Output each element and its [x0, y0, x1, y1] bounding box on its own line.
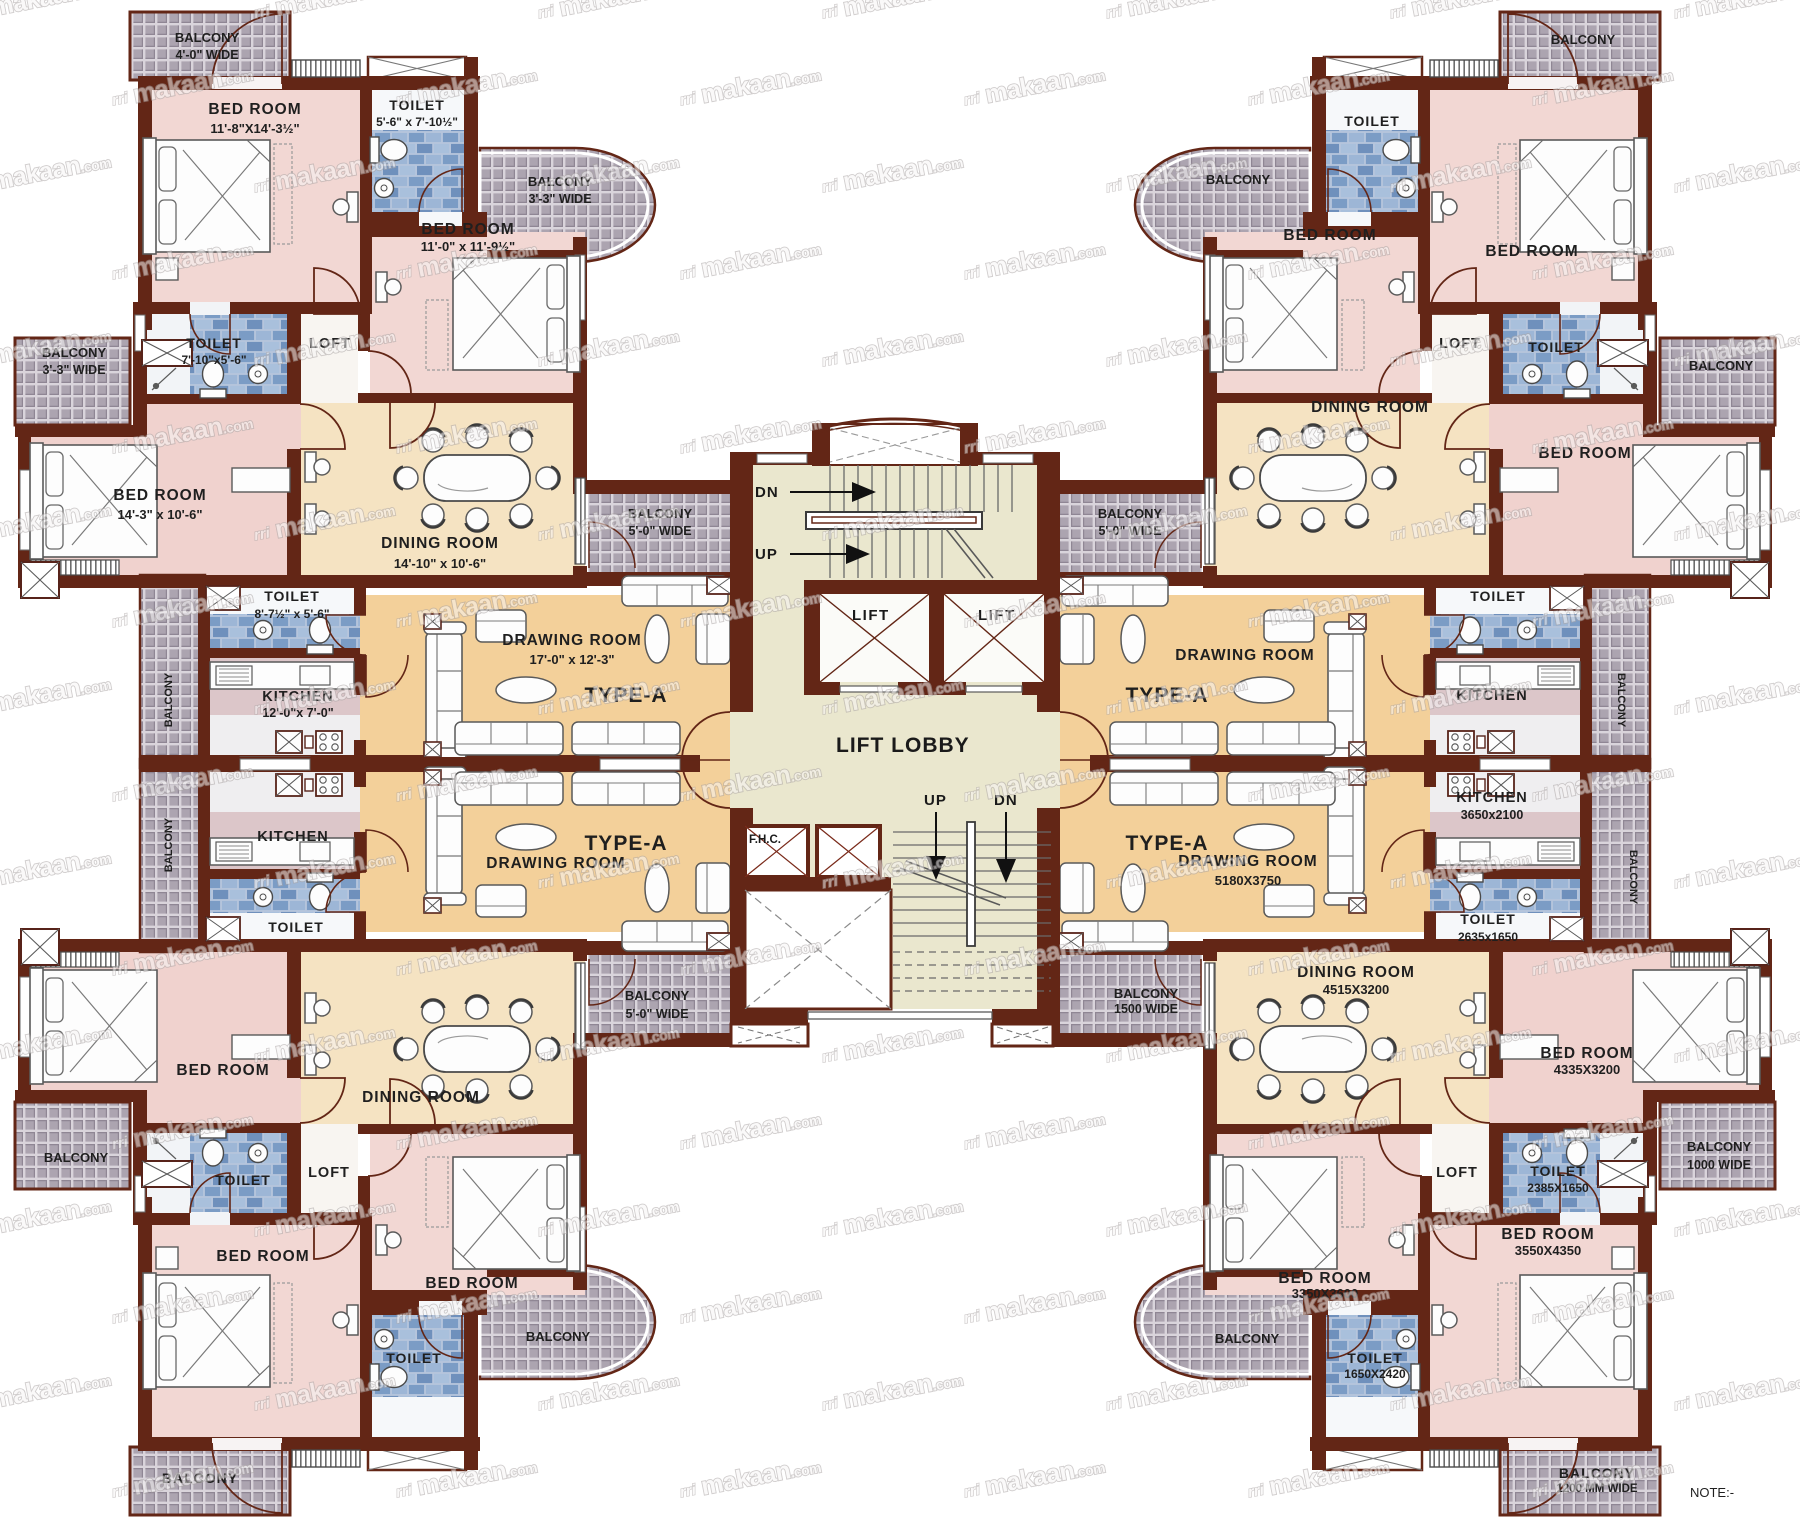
svg-text:F.H.C.: F.H.C.	[749, 834, 781, 846]
svg-text:LIFT: LIFT	[852, 607, 890, 624]
svg-text:BALCONY: BALCONY	[1615, 673, 1627, 728]
svg-text:BED ROOM: BED ROOM	[1501, 1226, 1594, 1243]
svg-text:BALCONY: BALCONY	[163, 672, 175, 727]
svg-text:14'-3" x 10'-6": 14'-3" x 10'-6"	[117, 507, 202, 522]
svg-text:BED ROOM: BED ROOM	[1540, 1045, 1633, 1062]
svg-text:TOILET: TOILET	[386, 1350, 442, 1366]
svg-text:DINING ROOM: DINING ROOM	[381, 535, 499, 552]
svg-text:BED ROOM: BED ROOM	[1283, 227, 1376, 244]
svg-text:BALCONY: BALCONY	[1551, 32, 1616, 47]
svg-text:BED ROOM: BED ROOM	[421, 221, 514, 238]
svg-text:TOILET: TOILET	[215, 1172, 271, 1188]
svg-text:BALCONY: BALCONY	[1114, 986, 1179, 1001]
svg-text:TOILET: TOILET	[186, 335, 242, 351]
svg-text:UP: UP	[755, 546, 778, 563]
svg-text:TOILET: TOILET	[1344, 113, 1400, 129]
svg-text:8'-7½" x 5'-6": 8'-7½" x 5'-6"	[254, 607, 329, 621]
svg-text:7'-10"x5'-6": 7'-10"x5'-6"	[181, 353, 246, 367]
svg-text:DRAWING ROOM: DRAWING ROOM	[502, 632, 641, 649]
svg-text:BALCONY: BALCONY	[1627, 850, 1639, 905]
svg-text:TOILET: TOILET	[1530, 1163, 1586, 1179]
svg-text:DN: DN	[755, 484, 779, 501]
svg-text:BED ROOM: BED ROOM	[1278, 1270, 1371, 1287]
svg-text:1650X2420: 1650X2420	[1344, 1367, 1406, 1381]
svg-text:1000 WIDE: 1000 WIDE	[1687, 1158, 1751, 1172]
svg-text:5'-0" WIDE: 5'-0" WIDE	[625, 1007, 688, 1021]
svg-text:4'-0" WIDE: 4'-0" WIDE	[175, 48, 238, 62]
svg-text:BALCONY: BALCONY	[1687, 1139, 1752, 1154]
svg-text:5'-6" x 7'-10½": 5'-6" x 7'-10½"	[376, 115, 458, 129]
svg-text:TOILET: TOILET	[1470, 588, 1526, 604]
svg-text:TOILET: TOILET	[264, 588, 320, 604]
svg-text:KITCHEN: KITCHEN	[1456, 790, 1527, 806]
svg-text:BALCONY: BALCONY	[625, 988, 690, 1003]
svg-text:DRAWING ROOM: DRAWING ROOM	[1175, 647, 1314, 664]
svg-text:BALCONY: BALCONY	[175, 30, 240, 45]
svg-text:DINING ROOM: DINING ROOM	[362, 1089, 480, 1106]
svg-text:LIFT LOBBY: LIFT LOBBY	[836, 734, 970, 757]
svg-text:14'-10" x 10'-6": 14'-10" x 10'-6"	[394, 556, 486, 571]
svg-text:BALCONY: BALCONY	[163, 817, 175, 872]
svg-text:NOTE:-: NOTE:-	[1690, 1485, 1734, 1500]
svg-text:UP: UP	[924, 792, 947, 809]
svg-text:2635x1650: 2635x1650	[1458, 930, 1518, 944]
svg-text:3'-3" WIDE: 3'-3" WIDE	[528, 192, 591, 206]
svg-text:LOFT: LOFT	[308, 1165, 350, 1181]
svg-text:LOFT: LOFT	[1436, 1165, 1478, 1181]
svg-text:5180X3750: 5180X3750	[1215, 873, 1282, 888]
svg-text:2385X1650: 2385X1650	[1527, 1181, 1589, 1195]
svg-text:BALCONY: BALCONY	[1215, 1331, 1280, 1346]
svg-text:KITCHEN: KITCHEN	[257, 829, 328, 845]
svg-text:3550X4350: 3550X4350	[1515, 1243, 1582, 1258]
svg-text:BALCONY: BALCONY	[526, 1329, 591, 1344]
svg-text:TOILET: TOILET	[268, 919, 324, 935]
svg-text:BED ROOM: BED ROOM	[113, 487, 206, 504]
svg-text:1500 WIDE: 1500 WIDE	[1114, 1002, 1178, 1016]
svg-text:17'-0" x 12'-3": 17'-0" x 12'-3"	[529, 652, 614, 667]
svg-text:4515X3200: 4515X3200	[1323, 982, 1390, 997]
svg-text:3650x2100: 3650x2100	[1461, 808, 1524, 822]
svg-text:TOILET: TOILET	[1528, 339, 1584, 355]
svg-text:BED ROOM: BED ROOM	[208, 101, 301, 118]
svg-text:11'-8"X14'-3½": 11'-8"X14'-3½"	[210, 121, 299, 136]
svg-text:BED ROOM: BED ROOM	[216, 1248, 309, 1265]
svg-text:BALCONY: BALCONY	[44, 1150, 109, 1165]
svg-text:DINING ROOM: DINING ROOM	[1311, 399, 1429, 416]
svg-text:3'-3" WIDE: 3'-3" WIDE	[42, 363, 105, 377]
svg-text:4335X3200: 4335X3200	[1554, 1062, 1621, 1077]
svg-text:TOILET: TOILET	[1347, 1350, 1403, 1366]
svg-text:TOILET: TOILET	[1460, 911, 1516, 927]
